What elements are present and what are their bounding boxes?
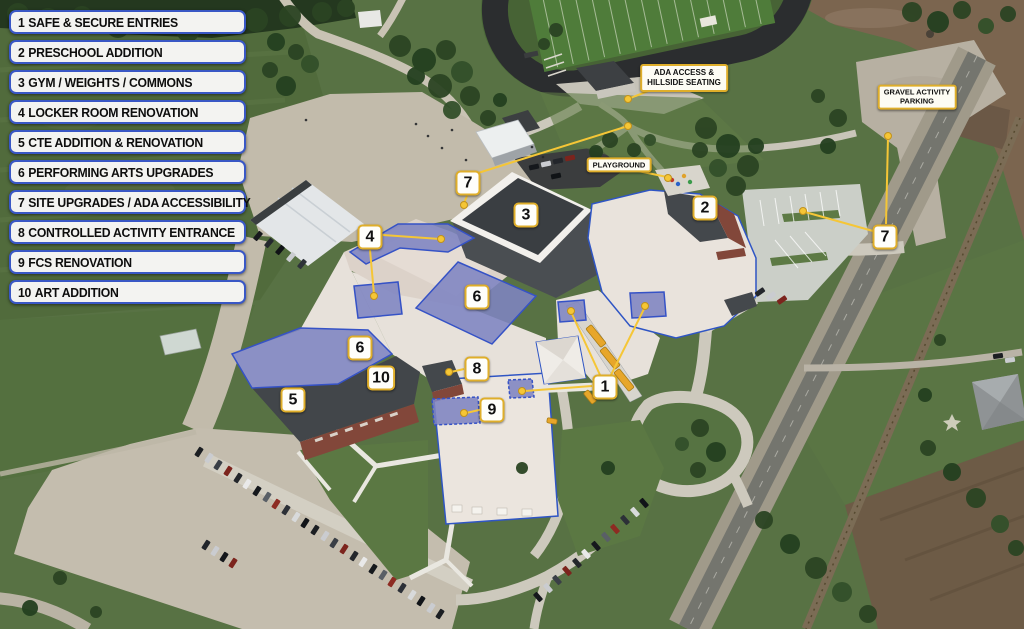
legend-num: 8 xyxy=(18,225,25,240)
legend-label: ART ADDITION xyxy=(35,285,119,300)
legend-item-10: 10ART ADDITION xyxy=(9,280,246,304)
legend-label: SITE UPGRADES / ADA ACCESSIBILITY xyxy=(28,195,250,210)
legend-item-3: 3GYM / WEIGHTS / COMMONS xyxy=(9,70,246,94)
legend-num: 5 xyxy=(18,135,25,150)
legend-label: LOCKER ROOM RENOVATION xyxy=(28,105,198,120)
map-marker-3-gym: 3 xyxy=(514,203,539,228)
legend-label: CTE ADDITION & RENOVATION xyxy=(28,135,203,150)
legend-num: 10 xyxy=(18,285,31,300)
legend-num: 9 xyxy=(18,255,25,270)
map-marker-7-north: 7 xyxy=(456,171,481,196)
callout-line: HILLSIDE SEATING xyxy=(647,78,721,88)
legend-num: 7 xyxy=(18,195,25,210)
legend-item-1: 1SAFE & SECURE ENTRIES xyxy=(9,10,246,34)
legend-label: FCS RENOVATION xyxy=(28,255,132,270)
project-legend: 1SAFE & SECURE ENTRIES 2PRESCHOOL ADDITI… xyxy=(9,10,246,304)
shed xyxy=(358,10,382,28)
map-marker-10-art: 10 xyxy=(367,366,395,391)
legend-item-4: 4LOCKER ROOM RENOVATION xyxy=(9,100,246,124)
callout-ada-access: ADA ACCESS & HILLSIDE SEATING xyxy=(640,64,728,92)
map-marker-5-cte: 5 xyxy=(281,388,306,413)
legend-num: 2 xyxy=(18,45,25,60)
map-marker-9-fcs: 9 xyxy=(480,398,505,423)
legend-label: PRESCHOOL ADDITION xyxy=(28,45,162,60)
callout-gravel-parking: GRAVEL ACTIVITY PARKING xyxy=(878,85,957,110)
callout-playground: PLAYGROUND xyxy=(587,157,652,172)
legend-item-8: 8CONTROLLED ACTIVITY ENTRANCE xyxy=(9,220,246,244)
legend-num: 1 xyxy=(18,15,25,30)
map-marker-1-entries: 1 xyxy=(593,375,618,400)
legend-num: 3 xyxy=(18,75,25,90)
callout-line: GRAVEL ACTIVITY xyxy=(884,88,951,97)
map-marker-8-activity: 8 xyxy=(465,357,490,382)
callout-line: PLAYGROUND xyxy=(593,160,646,169)
overlay-locker-room xyxy=(354,282,402,318)
legend-label: SAFE & SECURE ENTRIES xyxy=(28,15,178,30)
legend-item-7: 7SITE UPGRADES / ADA ACCESSIBILITY xyxy=(9,190,246,214)
legend-label: GYM / WEIGHTS / COMMONS xyxy=(28,75,192,90)
map-marker-7-east: 7 xyxy=(873,225,898,250)
legend-num: 6 xyxy=(18,165,25,180)
map-marker-4-locker: 4 xyxy=(358,225,383,250)
legend-item-5: 5CTE ADDITION & RENOVATION xyxy=(9,130,246,154)
legend-label: PERFORMING ARTS UPGRADES xyxy=(28,165,213,180)
legend-item-9: 9FCS RENOVATION xyxy=(9,250,246,274)
legend-item-6: 6PERFORMING ARTS UPGRADES xyxy=(9,160,246,184)
map-marker-6-west: 6 xyxy=(348,336,373,361)
map-marker-6-center: 6 xyxy=(465,285,490,310)
legend-item-2: 2PRESCHOOL ADDITION xyxy=(9,40,246,64)
legend-label: CONTROLLED ACTIVITY ENTRANCE xyxy=(28,225,235,240)
callout-line: ADA ACCESS & xyxy=(647,68,721,78)
legend-num: 4 xyxy=(18,105,25,120)
callout-line: PARKING xyxy=(884,97,951,106)
campus-projects-map: 1SAFE & SECURE ENTRIES 2PRESCHOOL ADDITI… xyxy=(0,0,1024,629)
map-marker-2-preschool: 2 xyxy=(693,196,718,221)
